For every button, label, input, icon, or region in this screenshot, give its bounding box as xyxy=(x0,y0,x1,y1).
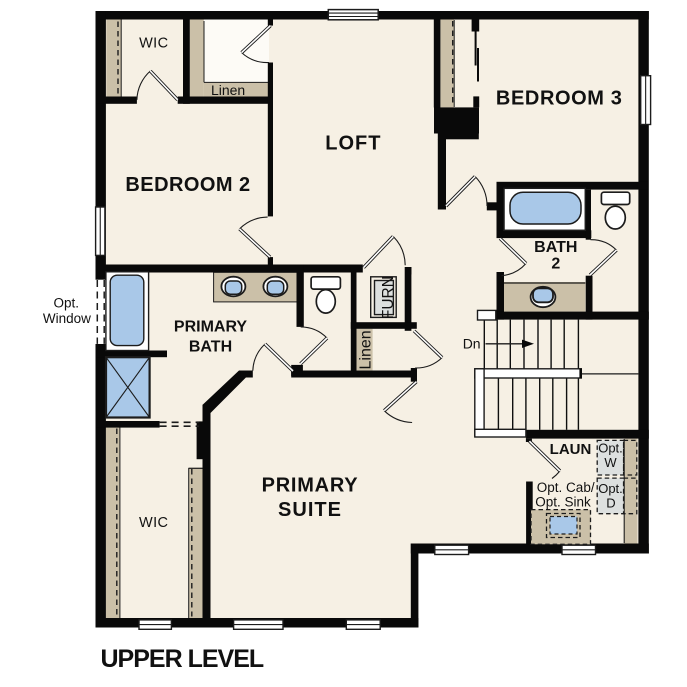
svg-text:LAUN: LAUN xyxy=(550,441,592,458)
svg-text:Linen: Linen xyxy=(358,330,375,369)
svg-text:Opt.: Opt. xyxy=(54,296,80,311)
svg-text:SUITE: SUITE xyxy=(278,499,342,521)
svg-text:UPPER LEVEL: UPPER LEVEL xyxy=(101,645,264,673)
svg-text:PRIMARY: PRIMARY xyxy=(174,319,248,336)
svg-text:Window: Window xyxy=(43,311,91,326)
svg-text:D: D xyxy=(606,495,615,510)
svg-text:Linen: Linen xyxy=(211,82,245,98)
svg-text:BEDROOM 2: BEDROOM 2 xyxy=(125,174,250,196)
svg-text:BEDROOM 3: BEDROOM 3 xyxy=(496,87,623,109)
svg-text:Opt. Sink: Opt. Sink xyxy=(535,495,591,510)
svg-text:Dn: Dn xyxy=(463,336,481,352)
svg-text:Opt. Cab/: Opt. Cab/ xyxy=(537,480,595,495)
svg-text:PRIMARY: PRIMARY xyxy=(262,475,359,497)
svg-text:LOFT: LOFT xyxy=(325,132,381,154)
svg-text:Opt.: Opt. xyxy=(598,441,623,456)
svg-text:Opt.: Opt. xyxy=(598,481,623,496)
svg-text:BATH: BATH xyxy=(534,239,577,256)
svg-text:W: W xyxy=(604,455,617,470)
svg-text:WIC: WIC xyxy=(139,36,168,52)
svg-text:BATH: BATH xyxy=(189,339,232,356)
svg-text:2: 2 xyxy=(551,256,560,273)
svg-text:FURN: FURN xyxy=(380,276,397,319)
svg-text:WIC: WIC xyxy=(139,515,168,531)
